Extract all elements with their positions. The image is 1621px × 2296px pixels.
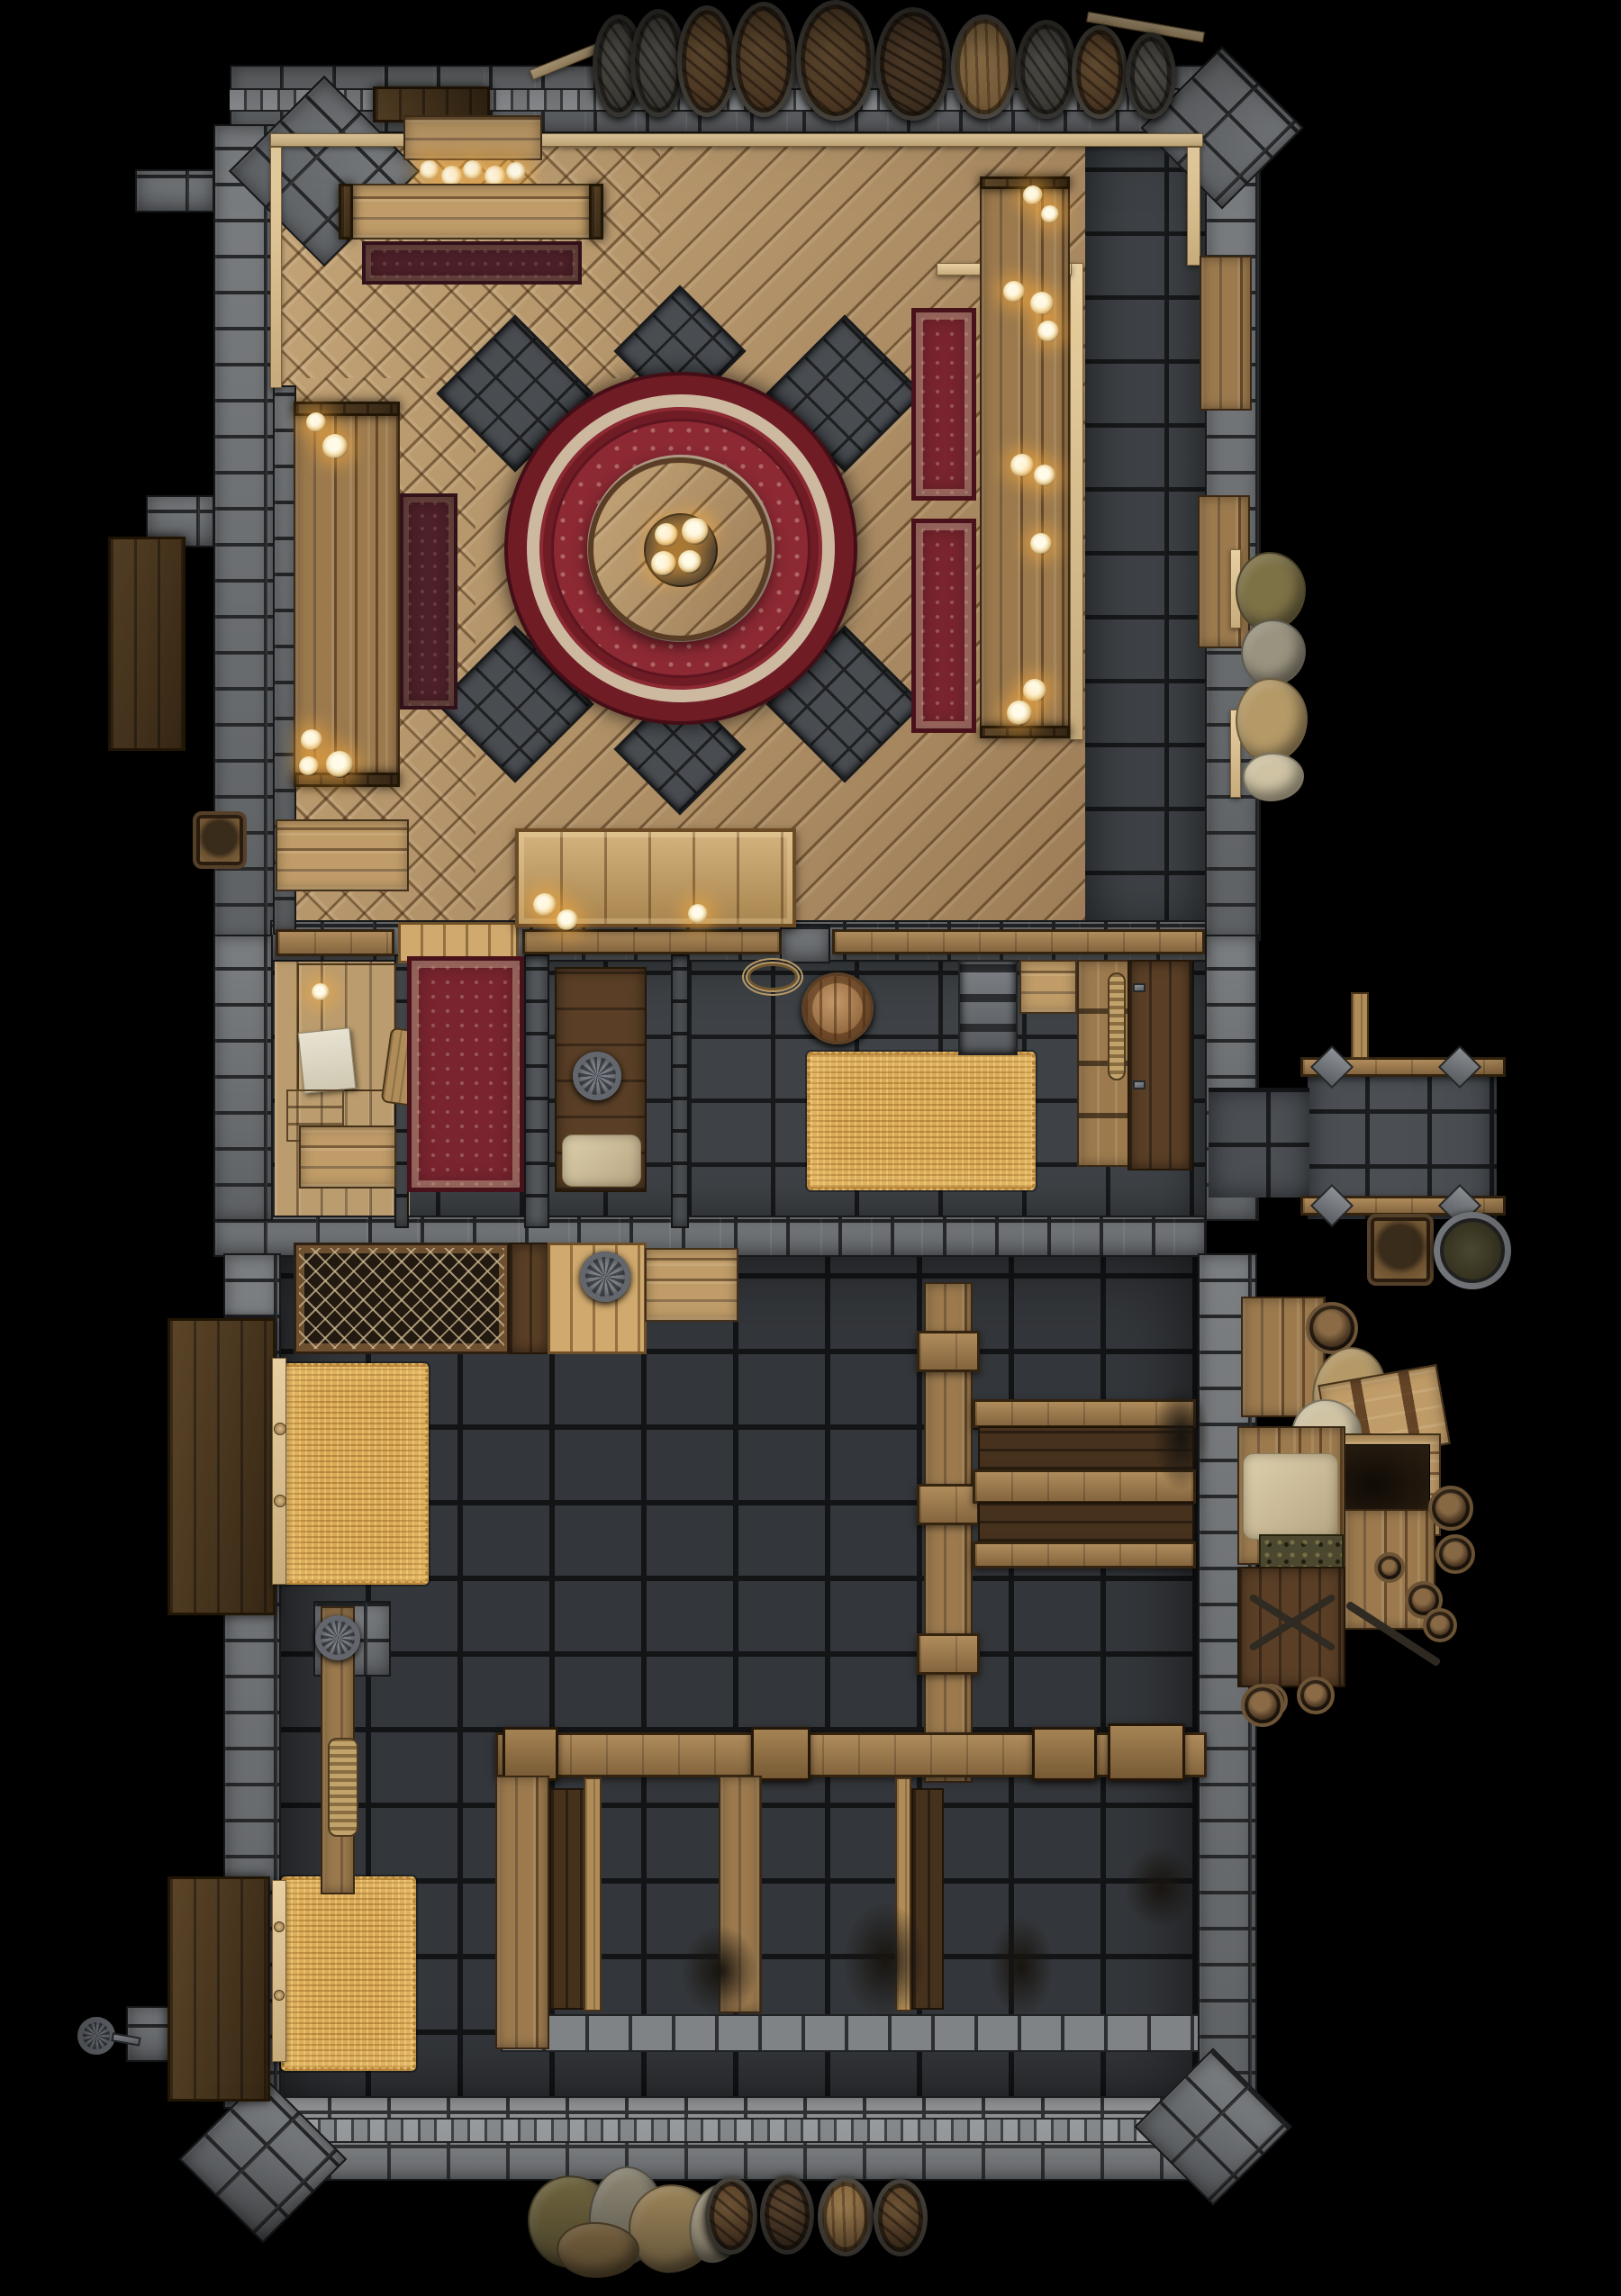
candle: [1007, 701, 1032, 726]
barrel: [705, 2177, 757, 2255]
pot: [1241, 1684, 1284, 1727]
bar-counter: [403, 115, 542, 160]
rope-coil: [742, 958, 803, 996]
rail-knob: [274, 1921, 285, 1932]
dirt-patch: [1153, 1383, 1210, 1491]
door-hinge: [1133, 1080, 1146, 1089]
table-end-cap: [589, 184, 603, 240]
rail-knob: [274, 1423, 286, 1435]
sack: [1241, 619, 1306, 686]
crate: [1019, 960, 1077, 1014]
plank-ledge: [645, 1248, 738, 1322]
study-rug: [407, 956, 524, 1192]
candle: [312, 983, 330, 1001]
candle: [655, 523, 678, 547]
paper-sheet: [298, 1027, 357, 1094]
candle: [682, 518, 709, 545]
spiked-ball: [315, 1615, 360, 1660]
west-outer-table: [168, 1876, 270, 2102]
fence-panel: [549, 1788, 587, 2010]
candle: [688, 904, 708, 924]
candle: [301, 729, 322, 751]
barrel: [677, 5, 737, 117]
candle: [1003, 281, 1025, 303]
sack: [1243, 753, 1304, 801]
dirt-patch: [843, 1902, 928, 2019]
candle: [533, 893, 557, 917]
spiked-ball: [77, 2017, 115, 2055]
hanging-rope: [1108, 972, 1126, 1080]
stall-panel: [978, 1502, 1194, 1543]
bench-end-cap: [980, 726, 1070, 738]
hall-west-rug: [400, 493, 457, 710]
north-table-rug: [362, 241, 582, 285]
wall-rail: [272, 1358, 286, 1585]
candle: [506, 162, 526, 182]
table-end-cap: [339, 184, 353, 240]
storeroom-divider-wall: [671, 954, 689, 1228]
desk-drawer: [299, 1125, 396, 1189]
hall-trim-west: [270, 147, 282, 388]
dirt-patch: [989, 1916, 1054, 2017]
lock-ring: [1374, 1552, 1405, 1583]
candle: [306, 412, 326, 432]
side-table: [276, 819, 409, 891]
west-wall-mid: [213, 935, 273, 1221]
great-chest: [515, 828, 796, 927]
candle: [326, 751, 353, 778]
rail-knob: [274, 1495, 286, 1507]
rope-net: [299, 1248, 504, 1349]
barrel: [731, 2, 796, 117]
hall-east-rug: [911, 519, 976, 733]
barrel: [1126, 32, 1176, 119]
door-boss: [580, 1252, 630, 1302]
hay-mat: [283, 1363, 429, 1585]
hall-trim-east-vertical: [1070, 263, 1083, 740]
candle: [1023, 679, 1046, 702]
candle: [1034, 465, 1055, 486]
divider-beam: [522, 929, 782, 954]
barrel: [875, 7, 951, 121]
wall-rail: [272, 1880, 286, 2062]
barrel: [1016, 20, 1077, 119]
fence-rail-thin: [584, 1777, 602, 2011]
hall-east-rug: [911, 308, 976, 501]
sack: [1236, 678, 1308, 763]
candle: [1023, 185, 1043, 205]
east-wall-rack: [1200, 256, 1252, 411]
pot: [1423, 1608, 1457, 1642]
porch-post: [1351, 992, 1369, 1059]
iron-banded-panel: [958, 960, 1018, 1055]
barrel: [874, 2179, 928, 2256]
fence-joint: [751, 1727, 810, 1781]
fence-post: [495, 1776, 549, 2049]
barrel: [796, 0, 875, 121]
battlemap-root: [0, 0, 1621, 2296]
hay-mat: [281, 1876, 416, 2071]
hay-mat: [807, 1052, 1036, 1190]
west-outer-table: [108, 537, 186, 751]
rope-coil: [328, 1738, 358, 1837]
bench-end-cap: [980, 176, 1070, 189]
door-hinge: [1133, 983, 1146, 992]
dirt-patch: [1126, 1846, 1196, 1929]
fence-joint: [1108, 1723, 1185, 1781]
post-collar: [917, 1484, 980, 1525]
porch-doorway-floor: [1209, 1088, 1309, 1198]
divider-pillar: [780, 924, 830, 963]
rail-knob: [274, 1990, 285, 2001]
pot: [1435, 1534, 1475, 1574]
fence-joint: [503, 1727, 558, 1781]
stone-curb-band: [501, 2014, 1207, 2052]
round-basket: [1434, 1212, 1511, 1289]
candle: [557, 909, 578, 931]
candle: [322, 434, 348, 459]
pot: [1297, 1677, 1335, 1714]
barrel: [818, 2177, 874, 2256]
spiked-ball: [573, 1052, 621, 1100]
candle: [1037, 321, 1059, 342]
candle: [299, 756, 319, 776]
basket: [1367, 1214, 1434, 1286]
barrel-lid-table: [801, 972, 874, 1044]
candle: [651, 551, 676, 576]
shelf-linens: [562, 1134, 641, 1187]
stall-beam: [973, 1541, 1196, 1568]
candle: [463, 160, 483, 180]
post-collar: [917, 1331, 980, 1372]
divider-beam: [276, 929, 394, 956]
candle: [678, 550, 702, 574]
west-outer-table: [168, 1318, 276, 1615]
candle: [1041, 205, 1059, 223]
south-wall-brick-band: [270, 2118, 1209, 2143]
dirt-patch: [681, 1925, 758, 2017]
west-wall-stub: [135, 169, 214, 212]
study-divider-wall: [524, 954, 549, 1228]
pot: [1428, 1486, 1473, 1531]
barrel: [1072, 25, 1127, 119]
hall-north-table: [339, 184, 603, 240]
post-collar: [917, 1633, 980, 1675]
candle: [1030, 292, 1054, 315]
candle: [1010, 454, 1034, 477]
candle: [420, 160, 439, 180]
barrel: [951, 14, 1018, 119]
plank-panel: [508, 1243, 549, 1354]
basket: [193, 811, 247, 869]
cloth-drape: [1243, 1453, 1338, 1540]
divider-beam: [832, 929, 1205, 954]
barrel: [760, 2175, 814, 2255]
hall-trim-ne-corner: [1187, 147, 1200, 266]
fence-top-beam: [495, 1732, 1207, 1777]
fence-joint: [1032, 1727, 1097, 1781]
candle: [1030, 533, 1052, 555]
